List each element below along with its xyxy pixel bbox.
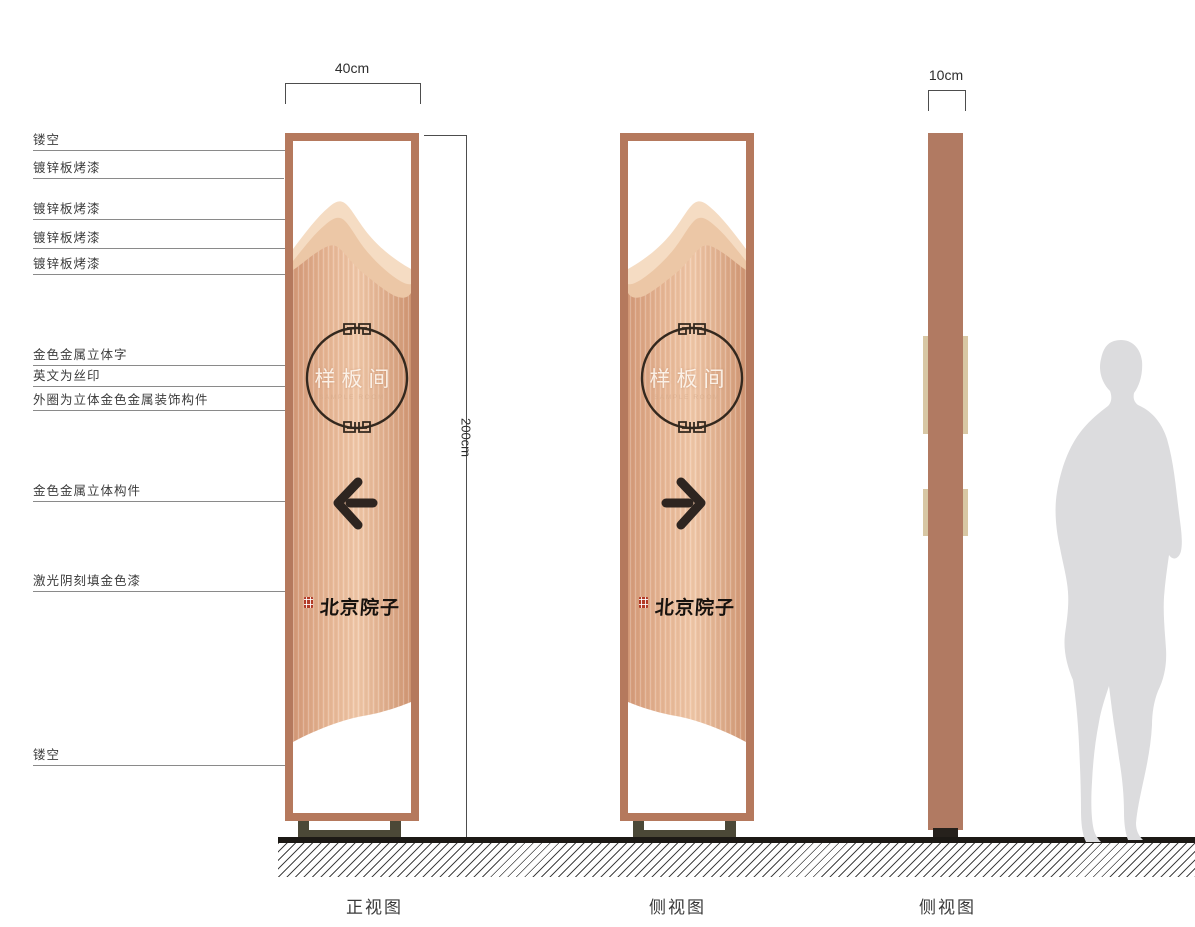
leader-line	[33, 150, 307, 151]
dimension-depth-bracket	[928, 90, 966, 111]
annotation-galvanized-2: 镀锌板烤漆	[33, 202, 325, 220]
brand-block: 北京院子	[293, 593, 411, 620]
seal-stamp-icon	[304, 597, 313, 608]
leader-line	[33, 248, 288, 249]
room-name-english-text: SAMPLE ROOM	[293, 394, 411, 401]
sign-side-view-1: 样板间 SAMPLE ROOM 北京院子	[620, 133, 754, 821]
dimension-width-bracket	[285, 83, 421, 104]
spec-drawing-canvas: 镂空 镀锌板烤漆 镀锌板烤漆 镀锌板烤漆 镀锌板烤漆 金色金属立体字 英文为丝印…	[0, 0, 1195, 927]
annotation-label: 外圈为立体金色金属装饰构件	[33, 393, 315, 408]
annotation-galvanized-3: 镀锌板烤漆	[33, 231, 288, 249]
leader-line	[33, 591, 328, 592]
dimension-height-line	[466, 135, 467, 838]
annotation-hollow-bottom: 镂空	[33, 748, 303, 766]
ground-hatching	[278, 843, 1195, 877]
annotation-label: 镀锌板烤漆	[33, 231, 288, 246]
leader-line	[33, 410, 315, 411]
brand-calligraphy: 北京院子	[654, 593, 736, 620]
dimension-depth-label: 10cm	[908, 67, 984, 83]
seal-stamp-icon	[639, 597, 648, 608]
annotation-label: 镀锌板烤漆	[33, 257, 293, 272]
room-name-text: 样板间	[293, 363, 411, 393]
room-name-english-text: SAMPLE ROOM	[628, 394, 746, 401]
leader-line	[33, 765, 303, 766]
leader-line	[33, 178, 284, 179]
annotation-outer-ring: 外圈为立体金色金属装饰构件	[33, 393, 315, 411]
side-profile-column	[928, 133, 963, 830]
annotation-galvanized-4: 镀锌板烤漆	[33, 257, 293, 275]
leader-line	[33, 274, 293, 275]
dimension-height-tick	[424, 135, 466, 136]
annotation-label: 镀锌板烤漆	[33, 161, 284, 176]
human-silhouette	[1038, 335, 1186, 845]
sign-side-graphic	[628, 141, 746, 813]
sign-front-view: 样板间 SAMPLE ROOM 北京院子	[285, 133, 419, 821]
annotation-laser-engraved: 激光阴刻填金色漆	[33, 574, 328, 592]
sign-front-graphic	[293, 141, 411, 813]
annotation-label: 镂空	[33, 748, 303, 763]
brand-block: 北京院子	[628, 593, 746, 620]
leader-line	[33, 219, 325, 220]
front-base-bracket	[298, 821, 401, 838]
annotation-galvanized-1: 镀锌板烤漆	[33, 161, 284, 179]
dimension-width-label: 40cm	[285, 60, 419, 76]
caption-front-view: 正视图	[346, 893, 403, 918]
caption-side-view-2: 侧视图	[919, 893, 976, 918]
annotation-label: 镂空	[33, 133, 307, 148]
annotation-label: 镀锌板烤漆	[33, 202, 325, 217]
dimension-height-label: 200cm	[459, 416, 474, 460]
brand-calligraphy: 北京院子	[319, 593, 401, 620]
room-name-text: 样板间	[628, 363, 746, 393]
side1-base-bracket	[633, 821, 736, 838]
annotation-hollow-top: 镂空	[33, 133, 307, 151]
caption-side-view-1: 侧视图	[649, 893, 706, 918]
annotation-label: 激光阴刻填金色漆	[33, 574, 328, 589]
